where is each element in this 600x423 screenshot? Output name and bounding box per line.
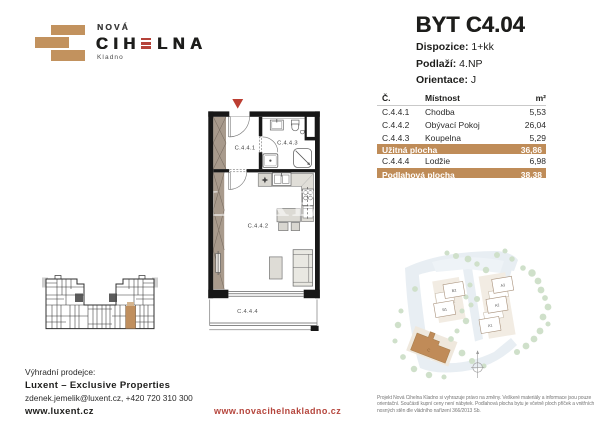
svg-text:A1: A1 [488,323,493,328]
svg-text:B1: B1 [442,307,447,312]
svg-text:A2: A2 [495,303,500,308]
svg-text:C.4.4.1: C.4.4.1 [235,145,256,151]
svg-text:A3: A3 [500,283,505,288]
svg-text:C.4.4.2: C.4.4.2 [248,223,269,229]
svg-text:C.4.4.4: C.4.4.4 [237,309,258,315]
svg-text:C.4.4.3: C.4.4.3 [277,141,298,147]
svg-text:B2: B2 [452,288,457,293]
